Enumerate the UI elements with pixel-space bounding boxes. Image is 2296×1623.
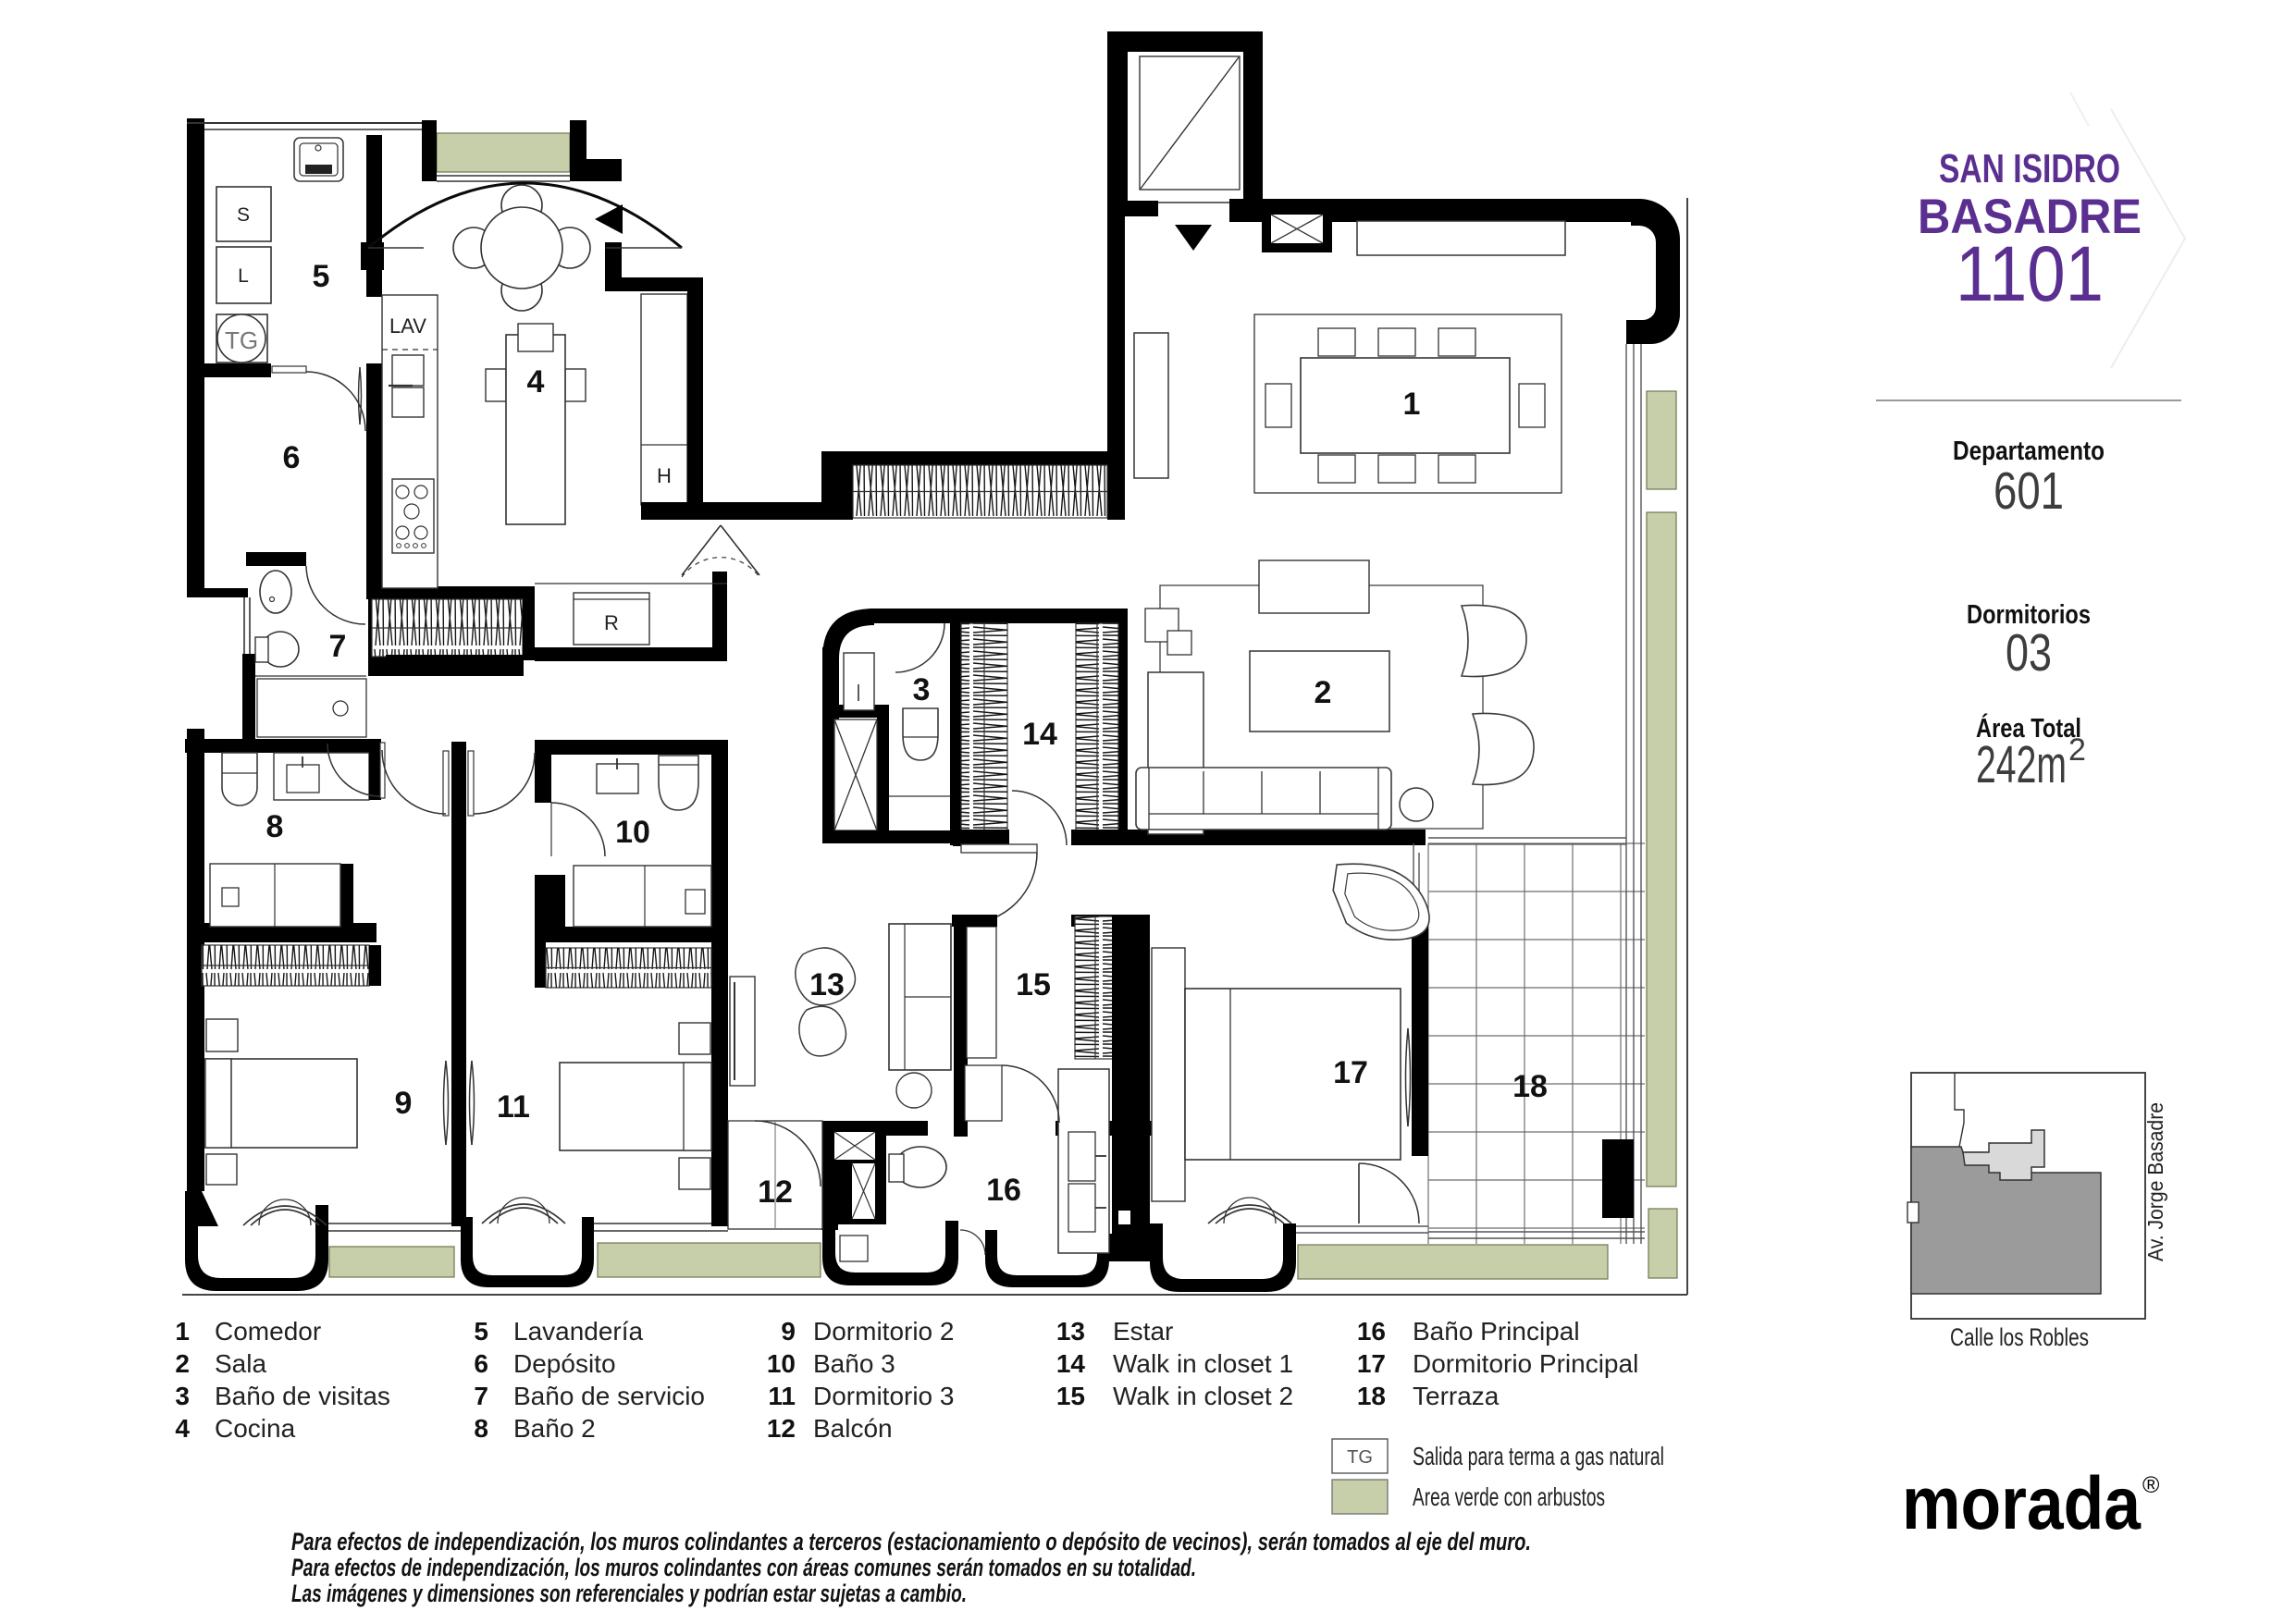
svg-text:13: 13 (1056, 1317, 1085, 1346)
svg-text:9: 9 (781, 1317, 796, 1346)
svg-text:Dormitorio 2: Dormitorio 2 (813, 1317, 954, 1346)
svg-text:Av. Jorge Basadre: Av. Jorge Basadre (2143, 1102, 2167, 1261)
svg-text:Baño de servicio: Baño de servicio (513, 1382, 705, 1410)
svg-text:Baño 2: Baño 2 (513, 1414, 596, 1443)
svg-text:10: 10 (615, 815, 650, 850)
svg-text:Walk in closet 1: Walk in closet 1 (1113, 1349, 1293, 1378)
svg-text:Baño de visitas: Baño de visitas (215, 1382, 390, 1410)
svg-text:14: 14 (1022, 717, 1057, 752)
svg-text:Las imágenes y dimensiones son: Las imágenes y dimensiones son referenci… (291, 1580, 967, 1607)
svg-text:Dormitorio 3: Dormitorio 3 (813, 1382, 954, 1410)
svg-text:Dormitorio Principal: Dormitorio Principal (1413, 1349, 1638, 1378)
svg-text:4: 4 (175, 1414, 190, 1443)
svg-text:2: 2 (175, 1349, 190, 1378)
svg-text:1: 1 (1403, 387, 1421, 422)
svg-text:8: 8 (266, 809, 284, 844)
svg-text:Lavandería: Lavandería (513, 1317, 644, 1346)
svg-text:LAV: LAV (389, 314, 426, 338)
svg-text:SAN ISIDRO: SAN ISIDRO (1939, 146, 2120, 191)
svg-text:L: L (238, 265, 249, 287)
svg-text:morada: morada (1902, 1462, 2142, 1545)
svg-text:8: 8 (474, 1414, 488, 1443)
svg-text:16: 16 (1357, 1317, 1386, 1346)
svg-text:03: 03 (2006, 623, 2052, 682)
svg-text:H: H (657, 464, 672, 487)
svg-text:5: 5 (313, 259, 330, 294)
svg-text:R: R (604, 611, 619, 634)
svg-text:Cocina: Cocina (215, 1414, 296, 1443)
svg-text:®: ® (2142, 1472, 2160, 1498)
svg-text:5: 5 (474, 1317, 488, 1346)
svg-text:Salida para terma a gas natura: Salida para terma a gas natural (1413, 1442, 1664, 1470)
svg-text:TG: TG (225, 326, 258, 354)
svg-text:16: 16 (986, 1173, 1021, 1208)
svg-text:1: 1 (175, 1317, 190, 1346)
svg-text:17: 17 (1357, 1349, 1386, 1378)
svg-text:601: 601 (1994, 461, 2064, 521)
svg-text:3: 3 (175, 1382, 190, 1410)
svg-text:17: 17 (1333, 1055, 1368, 1090)
svg-text:Calle los Robles: Calle los Robles (1950, 1323, 2089, 1351)
svg-text:Area verde con arbustos: Area verde con arbustos (1413, 1482, 1605, 1511)
svg-text:15: 15 (1056, 1382, 1085, 1410)
svg-text:6: 6 (474, 1349, 488, 1378)
svg-text:18: 18 (1512, 1069, 1548, 1104)
svg-text:9: 9 (395, 1086, 413, 1121)
svg-text:Baño Principal: Baño Principal (1413, 1317, 1580, 1346)
svg-text:S: S (237, 204, 250, 226)
svg-text:4: 4 (527, 364, 545, 400)
svg-text:Para efectos de independizació: Para efectos de independización, los mur… (291, 1528, 1531, 1555)
svg-text:Terraza: Terraza (1413, 1382, 1500, 1410)
svg-text:Sala: Sala (215, 1349, 266, 1378)
svg-text:12: 12 (767, 1414, 796, 1443)
svg-text:7: 7 (474, 1382, 488, 1410)
svg-text:13: 13 (809, 967, 845, 1002)
svg-text:Balcón: Balcón (813, 1414, 893, 1443)
svg-text:Comedor: Comedor (215, 1317, 321, 1346)
svg-text:Walk in closet 2: Walk in closet 2 (1113, 1382, 1293, 1410)
svg-text:6: 6 (283, 440, 301, 475)
svg-text:TG: TG (1347, 1447, 1373, 1468)
svg-text:Baño 3: Baño 3 (813, 1349, 895, 1378)
svg-text:11: 11 (768, 1382, 796, 1410)
svg-text:2: 2 (1315, 675, 1332, 710)
svg-text:12: 12 (758, 1174, 793, 1210)
svg-text:10: 10 (767, 1349, 796, 1378)
svg-text:2: 2 (2068, 732, 2086, 768)
svg-text:18: 18 (1357, 1382, 1386, 1410)
svg-text:1101: 1101 (1956, 230, 2104, 317)
svg-text:11: 11 (497, 1089, 530, 1125)
svg-text:242m: 242m (1976, 735, 2067, 794)
svg-text:14: 14 (1056, 1349, 1086, 1378)
svg-text:7: 7 (329, 629, 347, 664)
svg-text:Depósito: Depósito (513, 1349, 616, 1378)
svg-text:Estar: Estar (1113, 1317, 1173, 1346)
svg-text:Para efectos de independizació: Para efectos de independización, los mur… (291, 1554, 1196, 1581)
svg-text:15: 15 (1016, 967, 1051, 1002)
svg-text:3: 3 (913, 672, 931, 707)
